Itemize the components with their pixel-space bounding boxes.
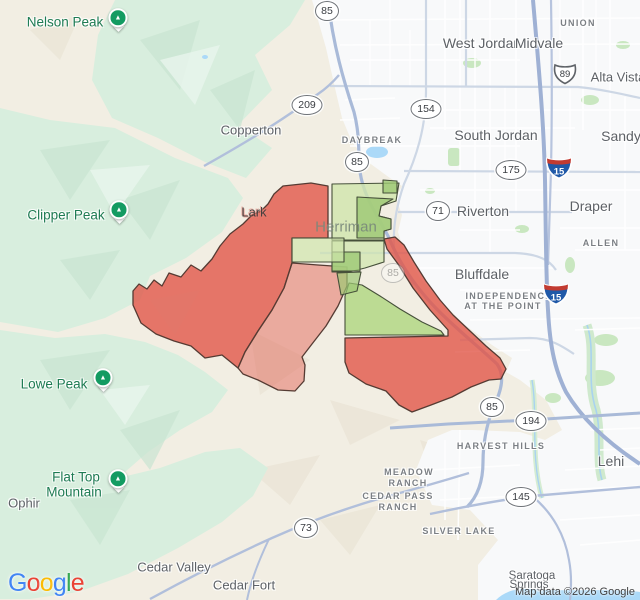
- peak-label-flat-top[interactable]: Flat Top: [52, 470, 100, 485]
- route-shield-194: 194: [516, 411, 547, 431]
- city-label-south-jordan[interactable]: South Jordan: [454, 127, 537, 143]
- district-label-cedar-pass-ranch: RANCH: [379, 502, 418, 512]
- district-polygon-green-west-rect[interactable]: [292, 238, 344, 262]
- pin-circle: ▲: [94, 368, 113, 387]
- svg-text:15: 15: [551, 293, 562, 304]
- district-label-cedar-pass: CEDAR PASS: [362, 491, 433, 501]
- city-label-copperton[interactable]: Copperton: [221, 123, 282, 138]
- city-label-midvale[interactable]: Midvale: [515, 35, 563, 51]
- peak-label-lowe-peak[interactable]: Lowe Peak: [21, 377, 88, 392]
- map-attribution[interactable]: Map data ©2026 Google: [515, 586, 635, 598]
- route-shield-85: 85: [345, 152, 369, 172]
- mountain-icon: ▲: [111, 472, 126, 487]
- peak-marker-icon[interactable]: ▲: [110, 200, 129, 225]
- mountain-icon: ▲: [112, 203, 127, 218]
- route-shield-85: 85: [315, 1, 339, 21]
- city-label-alta-vista[interactable]: Alta Vista: [591, 70, 640, 85]
- district-label-independence: INDEPENDENCE: [465, 291, 552, 301]
- peak-label-mountain[interactable]: Mountain: [46, 485, 102, 500]
- route-shield-154: 154: [411, 99, 442, 119]
- district-label-union: UNION: [560, 18, 596, 28]
- route-shield-209: 209: [292, 95, 323, 115]
- svg-text:15: 15: [554, 167, 565, 178]
- route-shield-71: 71: [426, 201, 450, 221]
- district-label-meadow-ranch: RANCH: [389, 478, 428, 488]
- district-label-harvest-hills: HARVEST HILLS: [457, 441, 545, 451]
- district-label-at-the-point: AT THE POINT: [464, 301, 541, 311]
- route-shield-175: 175: [496, 160, 527, 180]
- city-label-cedar-fort[interactable]: Cedar Fort: [213, 578, 275, 593]
- city-label-lark[interactable]: Lark: [241, 205, 266, 220]
- svg-text:89: 89: [560, 69, 571, 80]
- mountain-icon: ▲: [111, 11, 126, 26]
- city-label-lehi[interactable]: Lehi: [598, 453, 624, 469]
- peak-label-clipper-peak[interactable]: Clipper Peak: [27, 208, 104, 223]
- route-shield-85-faint: 85: [381, 263, 405, 283]
- city-label-herriman[interactable]: Herriman: [315, 219, 377, 236]
- city-label-ophir[interactable]: Ophir: [8, 496, 40, 511]
- map-canvas[interactable]: 85 ▲ ▲ ▲ ▲ Nelson Peak Clipper Peak Lowe…: [0, 0, 640, 600]
- district-label-allen: ALLEN: [583, 238, 620, 248]
- city-label-draper[interactable]: Draper: [570, 198, 613, 214]
- pin-circle: ▲: [109, 8, 128, 27]
- route-shield-85: 85: [480, 397, 504, 417]
- city-label-riverton[interactable]: Riverton: [457, 203, 509, 219]
- google-logo[interactable]: Google: [8, 569, 84, 598]
- district-label-daybreak: DAYBREAK: [342, 135, 403, 145]
- pin-circle: ▲: [109, 469, 128, 488]
- route-shield-73: 73: [294, 518, 318, 538]
- city-label-bluffdale[interactable]: Bluffdale: [455, 266, 509, 282]
- city-label-sandy[interactable]: Sandy: [601, 128, 640, 144]
- district-label-silver-lake: SILVER LAKE: [422, 526, 495, 536]
- pin-circle: ▲: [110, 200, 129, 219]
- route-shield-145: 145: [506, 487, 537, 507]
- mountain-icon: ▲: [96, 371, 111, 386]
- district-label-meadow: MEADOW: [384, 467, 434, 477]
- city-label-cedar-valley[interactable]: Cedar Valley: [137, 560, 210, 575]
- city-label-west-jordan[interactable]: West Jordan: [443, 35, 521, 51]
- peak-label-nelson-peak[interactable]: Nelson Peak: [27, 15, 104, 30]
- peak-marker-icon[interactable]: ▲: [109, 469, 128, 494]
- peak-marker-icon[interactable]: ▲: [94, 368, 113, 393]
- district-polygon-green-small-ne[interactable]: [383, 180, 397, 193]
- peak-marker-icon[interactable]: ▲: [109, 8, 128, 33]
